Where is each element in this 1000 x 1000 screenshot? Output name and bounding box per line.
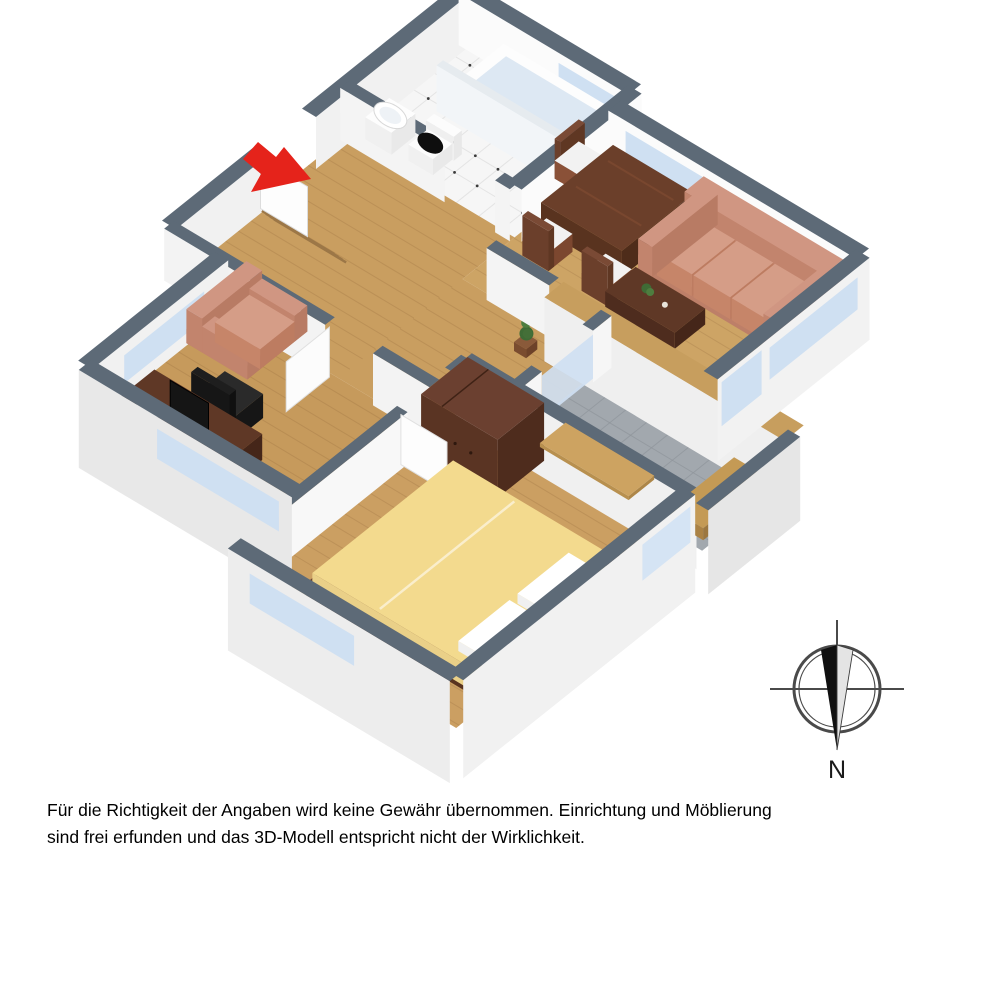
apartment-3d-model (78, 0, 869, 783)
tile-dot (474, 154, 477, 157)
disclaimer-text: Für die Richtigkeit der Angaben wird kei… (47, 797, 927, 851)
compass-needle-dark (821, 645, 837, 750)
knob (454, 442, 457, 445)
compass-rose: N (770, 620, 904, 784)
plant-leaves (523, 329, 533, 339)
tile-dot (497, 168, 500, 171)
compass-north-label: N (828, 756, 846, 784)
disclaimer-line-1: Für die Richtigkeit der Angaben wird kei… (47, 797, 927, 824)
disclaimer-line-2: sind frei erfunden und das 3D-Modell ent… (47, 824, 927, 851)
tile-dot (468, 64, 471, 67)
tile-dot (453, 171, 456, 174)
floorplan-page: N Für die Richtigkeit der Angaben wird k… (0, 0, 1000, 1000)
tile-dot (427, 97, 430, 100)
plant-leaves (646, 288, 654, 296)
chair-back-side (549, 227, 555, 272)
decor (662, 302, 668, 308)
wall-face (495, 180, 510, 241)
knob (469, 451, 472, 454)
tile-dot (476, 185, 479, 188)
compass-needle-light (837, 645, 853, 750)
